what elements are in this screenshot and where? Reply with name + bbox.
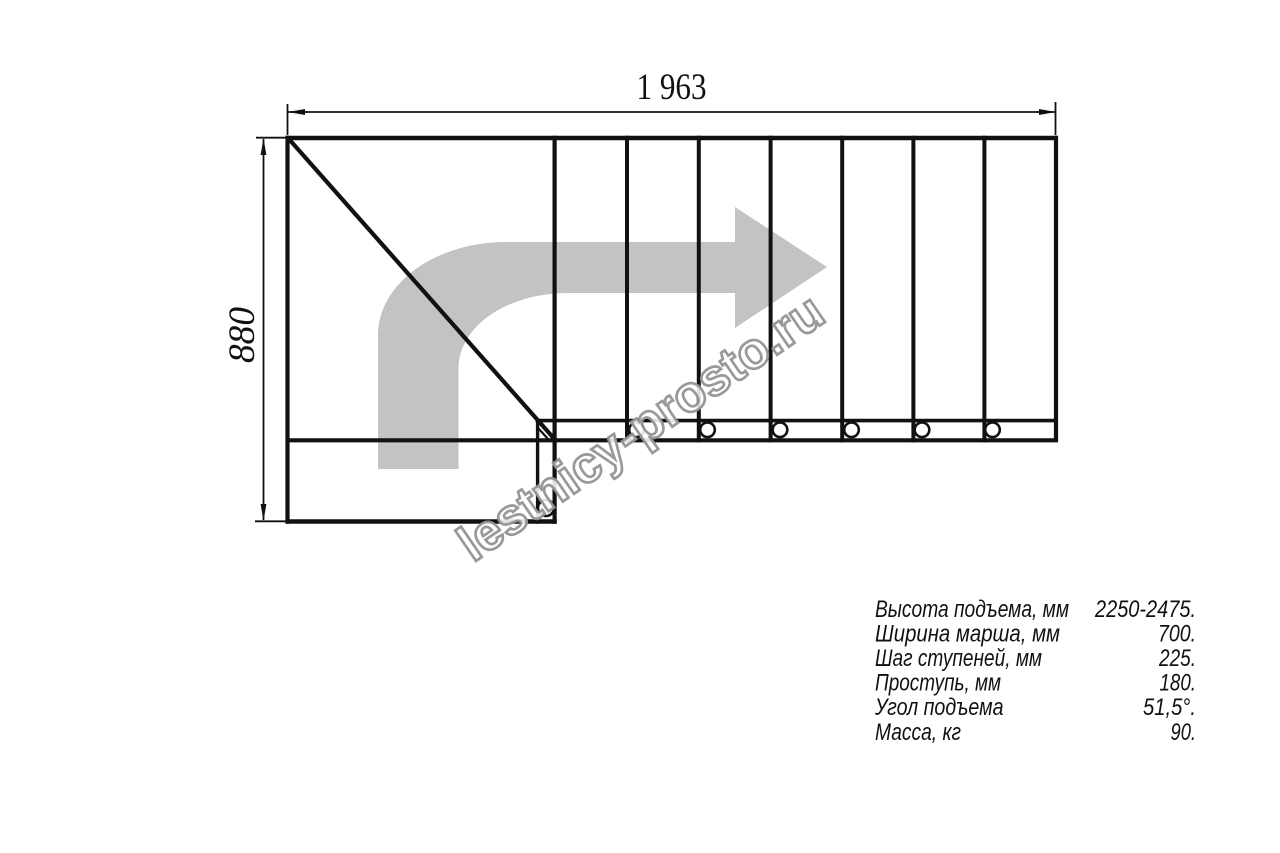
- svg-text:90.: 90.: [1171, 719, 1197, 746]
- svg-text:Ширина марша, мм: Ширина марша, мм: [875, 621, 1060, 648]
- svg-text:225.: 225.: [1158, 645, 1196, 672]
- svg-text:2250-2475.: 2250-2475.: [1094, 596, 1196, 623]
- svg-text:Высота подъема, мм: Высота подъема, мм: [875, 596, 1069, 623]
- svg-text:700.: 700.: [1158, 621, 1196, 648]
- svg-text:Угол подъема: Угол подъема: [874, 694, 1003, 721]
- svg-text:1 963: 1 963: [637, 67, 707, 108]
- svg-text:Масса, кг: Масса, кг: [875, 719, 961, 746]
- svg-text:880: 880: [222, 306, 263, 363]
- svg-text:51,5°.: 51,5°.: [1143, 694, 1196, 721]
- svg-text:Шаг ступеней, мм: Шаг ступеней, мм: [875, 645, 1042, 672]
- svg-text:180.: 180.: [1160, 670, 1197, 697]
- svg-text:Проступь, мм: Проступь, мм: [875, 670, 1001, 697]
